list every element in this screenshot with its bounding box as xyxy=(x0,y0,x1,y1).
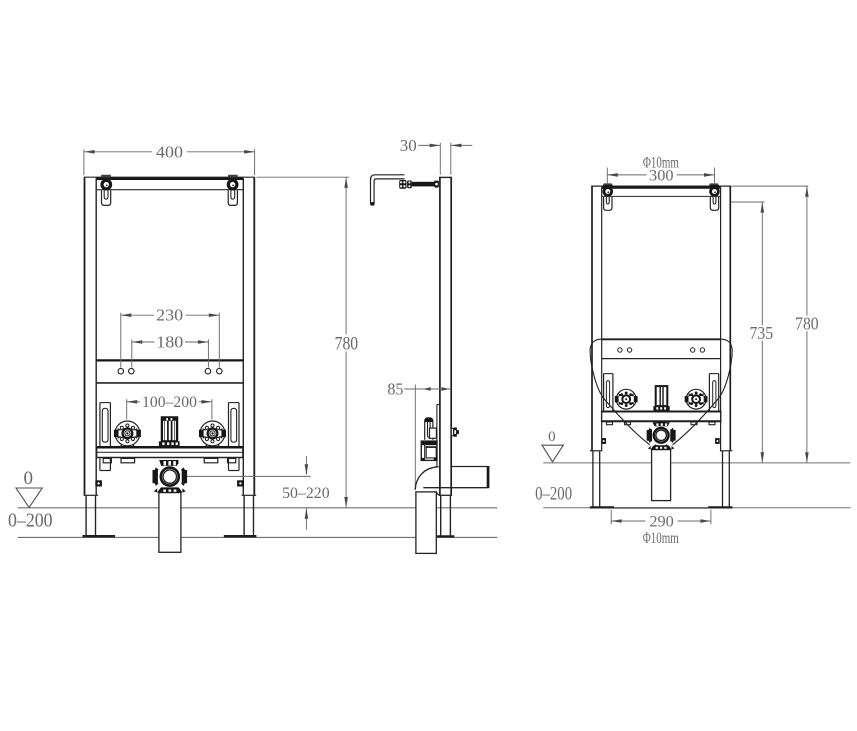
svg-text:30: 30 xyxy=(400,136,417,155)
svg-text:Φ10mm: Φ10mm xyxy=(643,530,679,547)
svg-text:0–200: 0–200 xyxy=(8,510,53,532)
svg-text:735: 735 xyxy=(750,323,774,343)
svg-text:100–200: 100–200 xyxy=(142,394,197,411)
svg-text:0: 0 xyxy=(24,468,34,489)
svg-text:300: 300 xyxy=(649,167,674,184)
svg-text:780: 780 xyxy=(335,333,359,354)
svg-text:230: 230 xyxy=(156,306,183,325)
svg-text:780: 780 xyxy=(795,314,819,334)
svg-text:290: 290 xyxy=(649,514,674,531)
svg-text:180: 180 xyxy=(156,333,183,352)
svg-text:0: 0 xyxy=(548,429,556,445)
svg-text:85: 85 xyxy=(387,380,403,399)
svg-text:50–220: 50–220 xyxy=(282,485,330,502)
svg-text:400: 400 xyxy=(156,142,183,161)
svg-text:0–200: 0–200 xyxy=(535,483,572,504)
